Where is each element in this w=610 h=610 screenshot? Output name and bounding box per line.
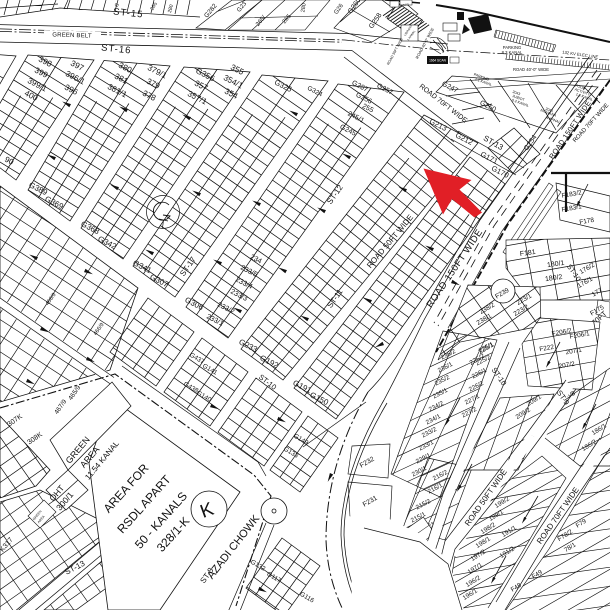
svg-text:ROAD 40'-0" WIDE: ROAD 40'-0" WIDE xyxy=(513,67,549,72)
svg-text:GREEN BELT: GREEN BELT xyxy=(52,32,92,39)
svg-text:8.3 KANAL: 8.3 KANAL xyxy=(502,50,523,55)
svg-text:1664 SCAN: 1664 SCAN xyxy=(429,59,447,63)
